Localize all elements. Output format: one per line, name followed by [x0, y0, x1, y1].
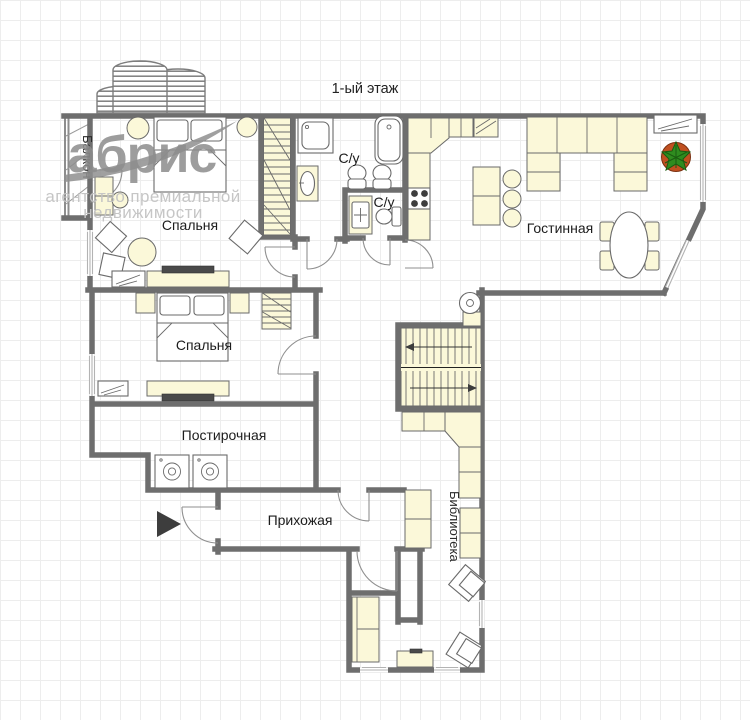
mirror-icon — [98, 381, 128, 396]
rug-icon — [128, 238, 156, 266]
mirror-icon — [112, 271, 145, 287]
bathtub-icon — [375, 116, 403, 164]
tv-dresser-icon — [147, 381, 229, 401]
floor-title: 1-ый этаж — [332, 81, 399, 97]
sink-icon — [297, 166, 318, 201]
washing-machine-icon — [193, 455, 227, 488]
pouf-icon — [237, 117, 257, 137]
logo-buildings-icon — [97, 61, 205, 113]
logo: абрис агентство премиальной недвижимости — [45, 61, 240, 222]
wardrobe-icon — [262, 293, 291, 329]
staircase-icon — [401, 328, 481, 406]
room-label-living: Гостинная — [527, 220, 594, 236]
dining-table-icon — [600, 212, 659, 278]
sofa-icon — [527, 117, 647, 191]
floorplan-drawing: 1-ый этаж Спальня Спальня С/у С/у Гостин… — [0, 0, 750, 720]
bookshelf-icon — [402, 412, 481, 558]
entrance-arrow-icon — [157, 511, 181, 537]
room-label-hallway: Прихожая — [268, 512, 333, 528]
tv-stand-icon — [397, 649, 433, 667]
sofa-icon — [352, 597, 379, 662]
wardrobe-icon — [264, 118, 291, 235]
column-icon — [460, 293, 482, 327]
floorplan-page: 1-ый этаж Спальня Спальня С/у С/у Гостин… — [0, 0, 750, 720]
nightstand-icon — [230, 293, 249, 313]
shower-icon — [298, 118, 333, 153]
room-label-bathroom2: С/у — [374, 194, 395, 210]
washing-machine-icon — [155, 455, 189, 488]
toilet-icon — [373, 165, 391, 189]
stove-icon — [408, 188, 430, 209]
toilet-icon — [348, 165, 366, 189]
tv-dresser-icon — [147, 266, 229, 287]
sink-icon — [349, 196, 372, 234]
plant-icon — [662, 142, 691, 172]
room-label-bedroom2: Спальня — [176, 337, 232, 353]
room-label-laundry: Постирочная — [182, 427, 267, 443]
logo-brand: абрис — [68, 126, 217, 184]
logo-tagline-2: недвижимости — [83, 203, 203, 222]
room-label-bathroom1: С/у — [339, 150, 360, 166]
room-label-library: Библиотека — [447, 491, 462, 562]
kitchen-island-icon — [473, 167, 521, 227]
nightstand-icon — [136, 293, 155, 313]
wall-shelf-icon — [654, 115, 697, 133]
